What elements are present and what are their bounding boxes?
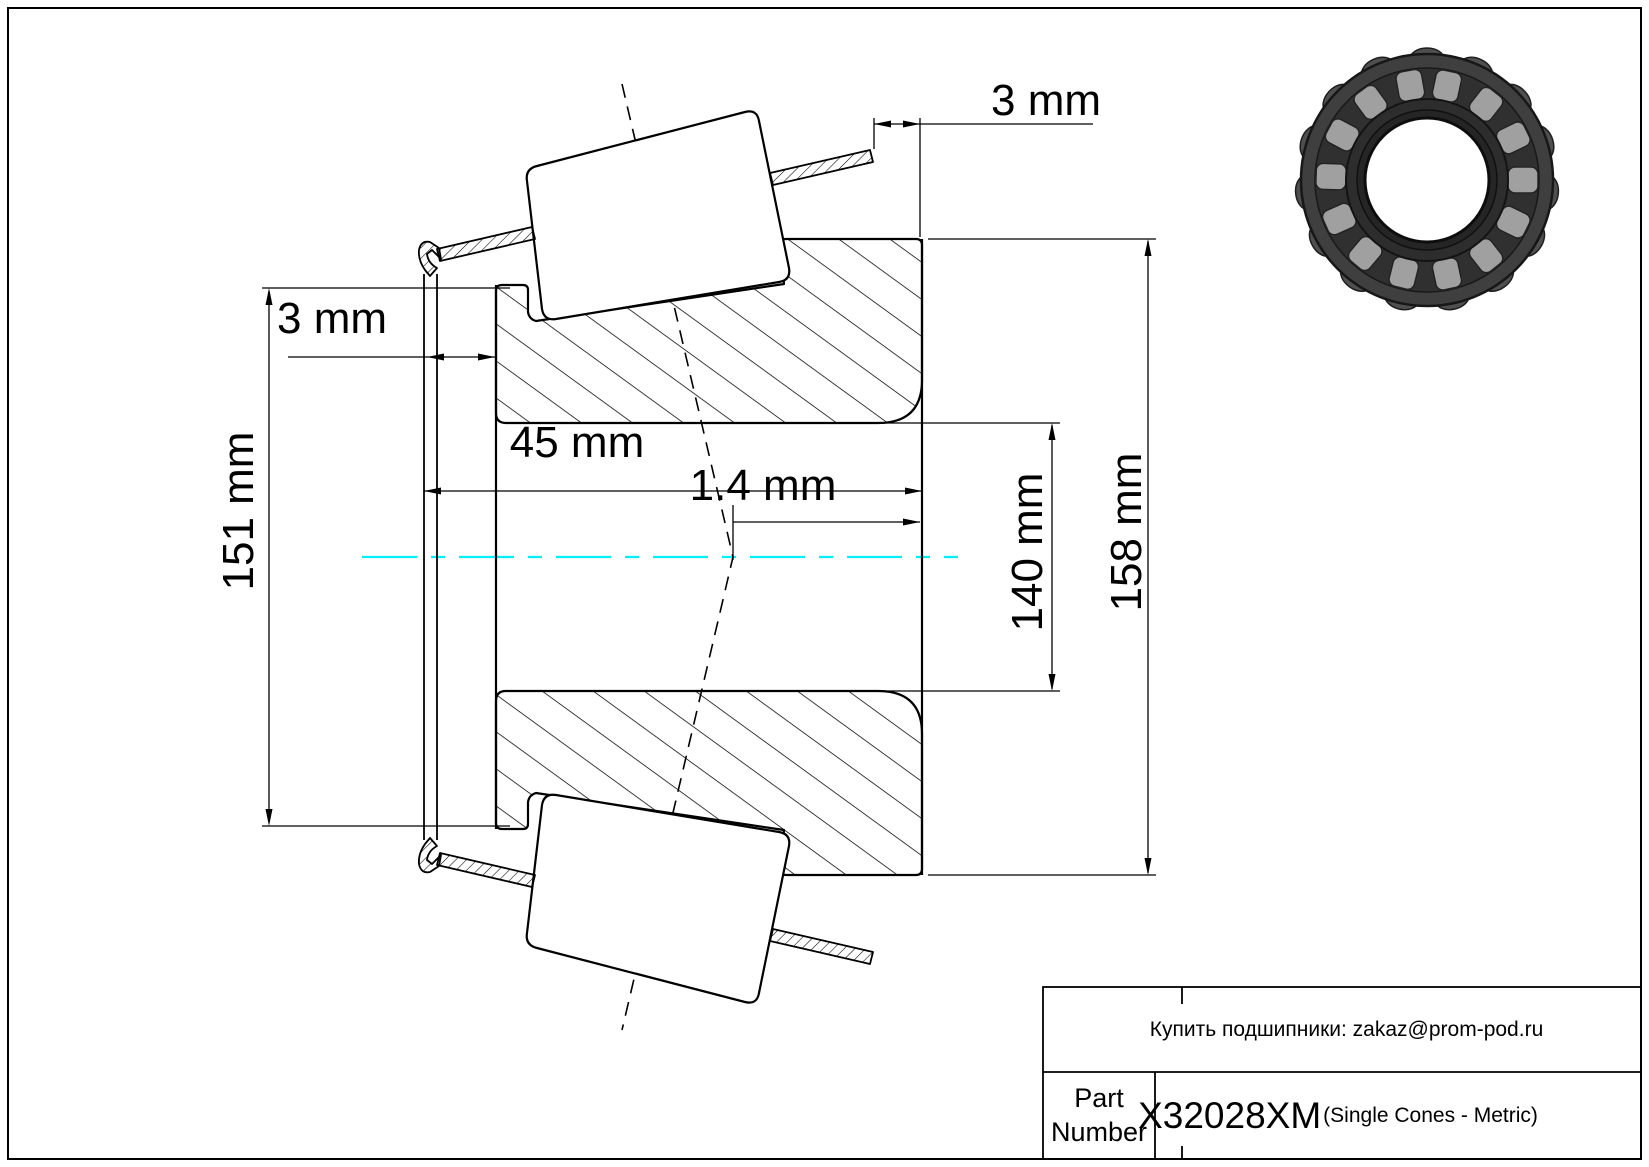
- dim-label-cage-protrusion-left: 3 mm: [277, 297, 387, 341]
- bearing-photo: [1294, 48, 1560, 313]
- drawing-sheet: 3 mm 3 mm 45 mm 1.4 mm 151 mm 140 mm 158…: [0, 0, 1649, 1167]
- dim-label-cage-protrusion-right: 3 mm: [991, 79, 1101, 123]
- dim-label-front-face-diameter: 151 mm: [217, 432, 261, 591]
- part-type: (Single Cones - Metric): [1323, 1104, 1538, 1128]
- dim-label-effective-center-offset: 1.4 mm: [690, 464, 837, 508]
- contact-note: Купить подшипники: zakaz@prom-pod.ru: [1052, 987, 1641, 1072]
- part-number: X32028XM: [1138, 1095, 1321, 1137]
- dim-label-outer-diameter: 158 mm: [1105, 453, 1149, 612]
- dim-label-bore-diameter: 140 mm: [1006, 473, 1050, 632]
- part-number-value: X32028XM (Single Cones - Metric): [1155, 1072, 1641, 1159]
- dim-label-overall-width: 45 mm: [510, 421, 644, 465]
